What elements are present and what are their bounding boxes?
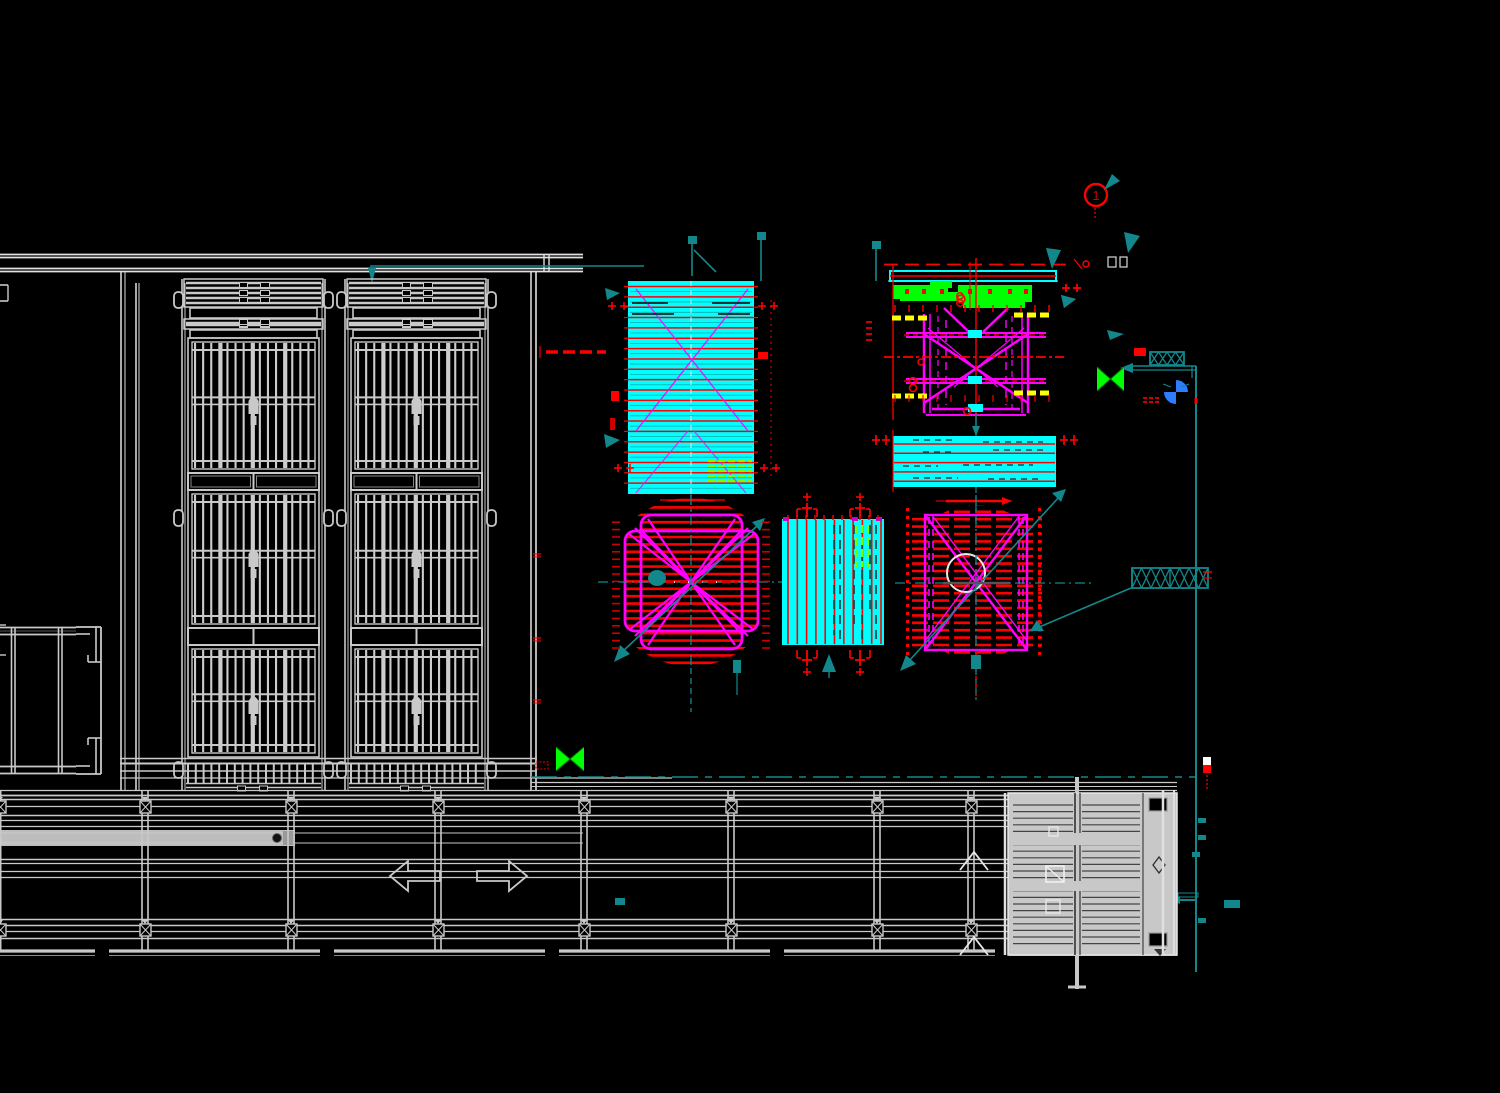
svg-text:1: 1: [1092, 188, 1099, 203]
